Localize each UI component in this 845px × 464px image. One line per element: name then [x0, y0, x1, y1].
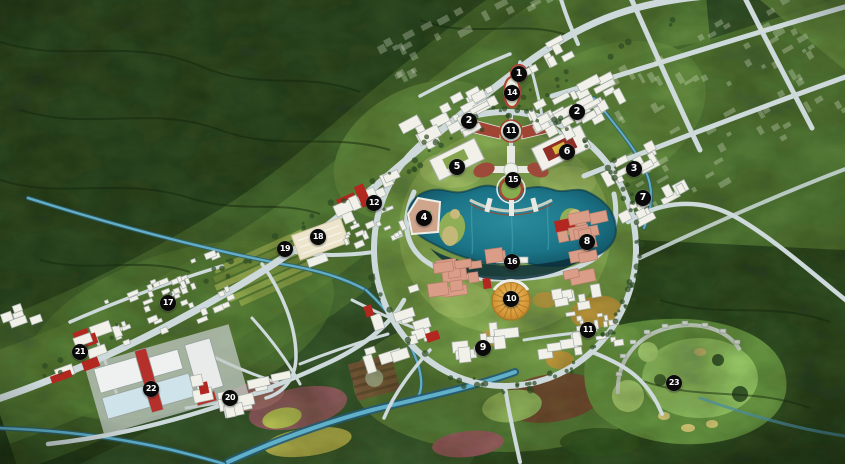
map-marker-4[interactable]: 4	[416, 210, 432, 226]
map-marker-23[interactable]: 23	[666, 375, 682, 391]
map-marker-3[interactable]: 3	[626, 161, 642, 177]
masterplan-map: 11422116515371241819816101711921222023	[0, 0, 845, 464]
map-marker-8[interactable]: 8	[579, 234, 595, 250]
map-marker-22[interactable]: 22	[143, 381, 159, 397]
map-marker-18[interactable]: 18	[310, 229, 326, 245]
vignette	[0, 0, 845, 464]
map-marker-2[interactable]: 2	[461, 113, 477, 129]
map-marker-1[interactable]: 1	[511, 66, 527, 82]
map-marker-11[interactable]: 11	[503, 123, 519, 139]
map-marker-19[interactable]: 19	[277, 241, 293, 257]
map-marker-20[interactable]: 20	[222, 390, 238, 406]
map-marker-17[interactable]: 17	[160, 295, 176, 311]
map-marker-16[interactable]: 16	[504, 254, 520, 270]
map-marker-6[interactable]: 6	[559, 144, 575, 160]
map-marker-14[interactable]: 14	[504, 85, 520, 101]
map-marker-15[interactable]: 15	[505, 172, 521, 188]
map-marker-21[interactable]: 21	[72, 344, 88, 360]
map-marker-12[interactable]: 12	[366, 195, 382, 211]
map-marker-10[interactable]: 10	[503, 291, 519, 307]
map-marker-7[interactable]: 7	[635, 190, 651, 206]
map-marker-5[interactable]: 5	[449, 159, 465, 175]
terrain-svg	[0, 0, 845, 464]
map-marker-11[interactable]: 11	[580, 322, 596, 338]
map-marker-2[interactable]: 2	[569, 104, 585, 120]
map-marker-9[interactable]: 9	[475, 340, 491, 356]
